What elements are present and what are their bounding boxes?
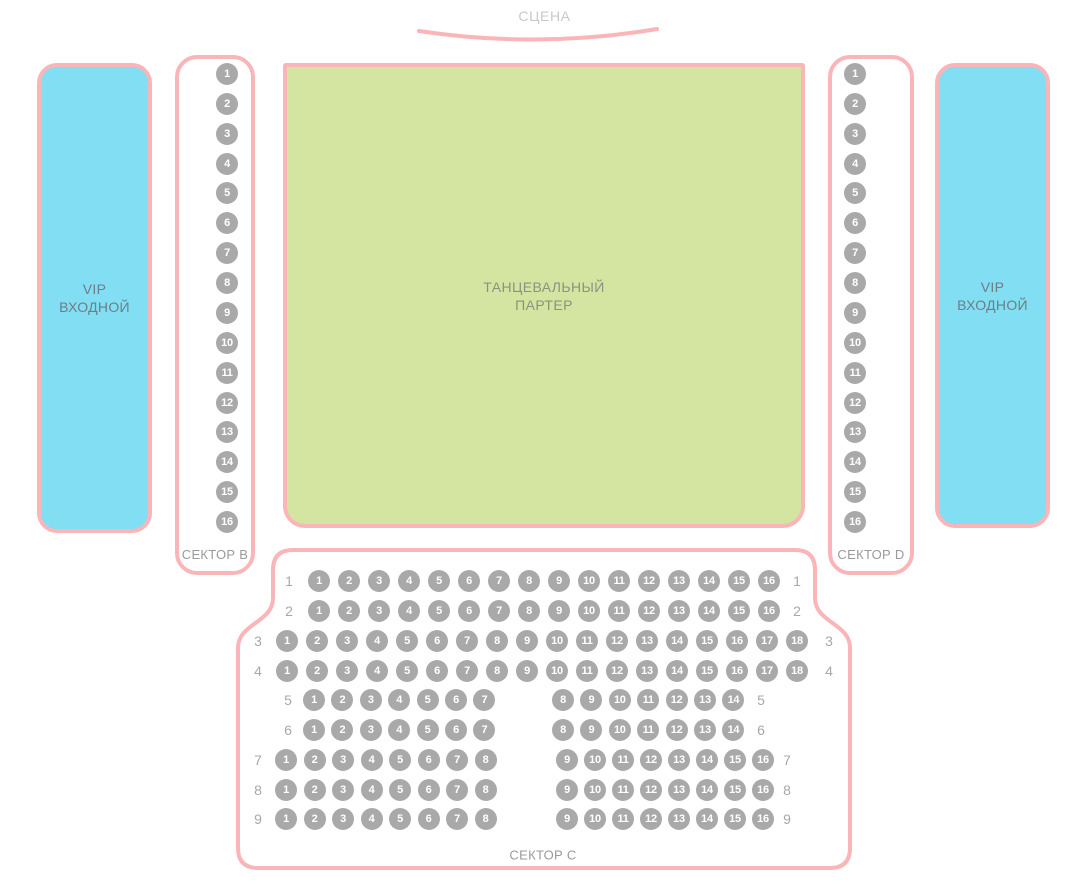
sector-c-seat-r7-3[interactable]: 3 — [332, 749, 354, 771]
sector-c-seat-r2-1[interactable]: 1 — [308, 600, 330, 622]
sector-c-seat-r2-16[interactable]: 16 — [758, 600, 780, 622]
sector-c-seat-r4-3[interactable]: 3 — [336, 660, 358, 682]
sector-c-seat-r4-14[interactable]: 14 — [666, 660, 688, 682]
sector-c-seat-r9-11[interactable]: 11 — [612, 808, 634, 830]
sector-b-seat-7[interactable]: 7 — [216, 242, 238, 264]
sector-c-seat-r2-13[interactable]: 13 — [668, 600, 690, 622]
sector-b-seat-6[interactable]: 6 — [216, 212, 238, 234]
sector-b-seat-5[interactable]: 5 — [216, 182, 238, 204]
sector-c-seat-r4-8[interactable]: 8 — [486, 660, 508, 682]
sector-c-seat-r6-8[interactable]: 8 — [552, 719, 574, 741]
sector-c-seat-r2-8[interactable]: 8 — [518, 600, 540, 622]
sector-c-seat-r8-6[interactable]: 6 — [418, 779, 440, 801]
sector-c-seat-r3-4[interactable]: 4 — [366, 630, 388, 652]
sector-c-row-4-label-right: 4 — [825, 663, 833, 679]
sector-c-seat-r3-11[interactable]: 11 — [576, 630, 598, 652]
sector-c-seat-r2-9[interactable]: 9 — [548, 600, 570, 622]
sector-c-seat-r1-9[interactable]: 9 — [548, 570, 570, 592]
sector-c-seat-r3-3[interactable]: 3 — [336, 630, 358, 652]
sector-b-seat-8[interactable]: 8 — [216, 272, 238, 294]
sector-c-seat-r8-7[interactable]: 7 — [446, 779, 468, 801]
sector-c-seat-r2-5[interactable]: 5 — [428, 600, 450, 622]
sector-d-seat-16[interactable]: 16 — [844, 511, 866, 533]
sector-c-seat-r5-11[interactable]: 11 — [637, 689, 659, 711]
sector-c-seat-r5-10[interactable]: 10 — [609, 689, 631, 711]
sector-c-seat-r2-15[interactable]: 15 — [728, 600, 750, 622]
sector-b-seat-14[interactable]: 14 — [216, 451, 238, 473]
sector-c-seat-r2-11[interactable]: 11 — [608, 600, 630, 622]
sector-c-seat-r4-13[interactable]: 13 — [636, 660, 658, 682]
sector-c-seat-r7-4[interactable]: 4 — [361, 749, 383, 771]
sector-c-row-7-label-right: 7 — [783, 752, 791, 768]
sector-c-seat-r9-6[interactable]: 6 — [418, 808, 440, 830]
sector-c-seat-r7-10[interactable]: 10 — [584, 749, 606, 771]
sector-c-seat-r8-9[interactable]: 9 — [556, 779, 578, 801]
sector-c-seat-r6-12[interactable]: 12 — [666, 719, 688, 741]
sector-b-seat-1[interactable]: 1 — [216, 63, 238, 85]
sector-c-seat-r4-7[interactable]: 7 — [456, 660, 478, 682]
sector-c-seat-r1-1[interactable]: 1 — [308, 570, 330, 592]
sector-c-seat-r9-13[interactable]: 13 — [668, 808, 690, 830]
sector-c-seat-r9-15[interactable]: 15 — [724, 808, 746, 830]
sector-c-seat-r2-7[interactable]: 7 — [488, 600, 510, 622]
sector-d-seat-4[interactable]: 4 — [844, 153, 866, 175]
sector-c-seat-r6-6[interactable]: 6 — [445, 719, 467, 741]
sector-c-seat-r3-17[interactable]: 17 — [756, 630, 778, 652]
sector-c-seat-r8-1[interactable]: 1 — [275, 779, 297, 801]
sector-c-seat-r7-5[interactable]: 5 — [389, 749, 411, 771]
sector-c-seat-r4-12[interactable]: 12 — [606, 660, 628, 682]
sector-c-seat-r4-15[interactable]: 15 — [696, 660, 718, 682]
sector-c-seat-r9-14[interactable]: 14 — [696, 808, 718, 830]
sector-c-seat-r3-9[interactable]: 9 — [516, 630, 538, 652]
sector-c-seat-r4-9[interactable]: 9 — [516, 660, 538, 682]
sector-c-row-2-label-right: 2 — [793, 603, 801, 619]
sector-c-seat-r5-13[interactable]: 13 — [694, 689, 716, 711]
sector-c-seat-r7-11[interactable]: 11 — [612, 749, 634, 771]
sector-c-row-1-label-left: 1 — [285, 573, 293, 589]
sector-c-seat-r1-7[interactable]: 7 — [488, 570, 510, 592]
sector-c-seat-r5-9[interactable]: 9 — [580, 689, 602, 711]
sector-c-seat-r7-13[interactable]: 13 — [668, 749, 690, 771]
sector-c-seat-r9-5[interactable]: 5 — [389, 808, 411, 830]
sector-d-seat-14[interactable]: 14 — [844, 451, 866, 473]
sector-b-seat-13[interactable]: 13 — [216, 421, 238, 443]
sector-c-seat-r7-9[interactable]: 9 — [556, 749, 578, 771]
sector-c-seat-r8-11[interactable]: 11 — [612, 779, 634, 801]
sector-c-seat-r6-5[interactable]: 5 — [417, 719, 439, 741]
sector-d-seat-6[interactable]: 6 — [844, 212, 866, 234]
sector-c-seat-r4-5[interactable]: 5 — [396, 660, 418, 682]
sector-c-seat-r1-11[interactable]: 11 — [608, 570, 630, 592]
sector-c-seat-r5-1[interactable]: 1 — [303, 689, 325, 711]
sector-c-seat-r7-12[interactable]: 12 — [640, 749, 662, 771]
sector-c-seat-r1-12[interactable]: 12 — [638, 570, 660, 592]
sector-c-row-5-label-left: 5 — [284, 692, 292, 708]
sector-c-seat-r6-13[interactable]: 13 — [694, 719, 716, 741]
sector-b-seat-10[interactable]: 10 — [216, 332, 238, 354]
sector-b-seat-11[interactable]: 11 — [216, 362, 238, 384]
sector-c-seat-r1-16[interactable]: 16 — [758, 570, 780, 592]
sector-c-seat-r9-16[interactable]: 16 — [752, 808, 774, 830]
seats-layer: 1234567891011121314151612345678910111213… — [0, 0, 1089, 885]
sector-c-seat-r2-14[interactable]: 14 — [698, 600, 720, 622]
sector-c-seat-r3-2[interactable]: 2 — [306, 630, 328, 652]
sector-c-seat-r6-11[interactable]: 11 — [637, 719, 659, 741]
sector-c-seat-r3-7[interactable]: 7 — [456, 630, 478, 652]
sector-c-seat-r2-3[interactable]: 3 — [368, 600, 390, 622]
sector-c-row-4-label-left: 4 — [254, 663, 262, 679]
sector-c-seat-r5-12[interactable]: 12 — [666, 689, 688, 711]
sector-d-seat-7[interactable]: 7 — [844, 242, 866, 264]
sector-c-seat-r8-5[interactable]: 5 — [389, 779, 411, 801]
sector-b-seat-4[interactable]: 4 — [216, 153, 238, 175]
sector-d-seat-3[interactable]: 3 — [844, 123, 866, 145]
sector-c-seat-r8-2[interactable]: 2 — [304, 779, 326, 801]
sector-c-seat-r9-8[interactable]: 8 — [475, 808, 497, 830]
sector-c-seat-r4-11[interactable]: 11 — [576, 660, 598, 682]
sector-d-seat-1[interactable]: 1 — [844, 63, 866, 85]
sector-c-row-5-label-right: 5 — [757, 692, 765, 708]
sector-c-seat-r4-18[interactable]: 18 — [786, 660, 808, 682]
sector-c-row-3-label-left: 3 — [254, 633, 262, 649]
sector-c-seat-r1-10[interactable]: 10 — [578, 570, 600, 592]
sector-c-row-3-label-right: 3 — [825, 633, 833, 649]
sector-d-seat-8[interactable]: 8 — [844, 272, 866, 294]
sector-c-row-9-label-left: 9 — [254, 811, 262, 827]
sector-d-seat-5[interactable]: 5 — [844, 182, 866, 204]
sector-c-seat-r3-16[interactable]: 16 — [726, 630, 748, 652]
sector-c-seat-r4-17[interactable]: 17 — [756, 660, 778, 682]
sector-c-seat-r5-7[interactable]: 7 — [473, 689, 495, 711]
sector-c-seat-r4-6[interactable]: 6 — [426, 660, 448, 682]
sector-c-row-8-label-left: 8 — [254, 782, 262, 798]
sector-c-seat-r3-1[interactable]: 1 — [276, 630, 298, 652]
sector-c-seat-r8-16[interactable]: 16 — [752, 779, 774, 801]
sector-c-seat-r9-10[interactable]: 10 — [584, 808, 606, 830]
sector-c-seat-r7-14[interactable]: 14 — [696, 749, 718, 771]
sector-d-seat-13[interactable]: 13 — [844, 421, 866, 443]
sector-d-seat-2[interactable]: 2 — [844, 93, 866, 115]
sector-c-seat-r3-14[interactable]: 14 — [666, 630, 688, 652]
sector-d-seat-9[interactable]: 9 — [844, 302, 866, 324]
sector-d-seat-12[interactable]: 12 — [844, 392, 866, 414]
sector-c-seat-r3-8[interactable]: 8 — [486, 630, 508, 652]
sector-c-seat-r1-6[interactable]: 6 — [458, 570, 480, 592]
sector-c-seat-r8-8[interactable]: 8 — [475, 779, 497, 801]
sector-c-seat-r2-12[interactable]: 12 — [638, 600, 660, 622]
sector-c-seat-r6-3[interactable]: 3 — [360, 719, 382, 741]
sector-c-seat-r8-10[interactable]: 10 — [584, 779, 606, 801]
sector-c-seat-r4-10[interactable]: 10 — [546, 660, 568, 682]
sector-c-row-1-label-right: 1 — [793, 573, 801, 589]
sector-c-seat-r8-14[interactable]: 14 — [696, 779, 718, 801]
sector-b-seat-3[interactable]: 3 — [216, 123, 238, 145]
sector-c-seat-r1-2[interactable]: 2 — [338, 570, 360, 592]
sector-c-seat-r5-8[interactable]: 8 — [552, 689, 574, 711]
sector-b-seat-12[interactable]: 12 — [216, 392, 238, 414]
sector-c-seat-r7-8[interactable]: 8 — [475, 749, 497, 771]
sector-c-seat-r1-4[interactable]: 4 — [398, 570, 420, 592]
sector-c-seat-r6-4[interactable]: 4 — [388, 719, 410, 741]
sector-c-seat-r9-7[interactable]: 7 — [446, 808, 468, 830]
sector-c-seat-r6-9[interactable]: 9 — [580, 719, 602, 741]
sector-c-row-6-label-right: 6 — [757, 722, 765, 738]
sector-c-seat-r4-2[interactable]: 2 — [306, 660, 328, 682]
sector-c-seat-r7-7[interactable]: 7 — [446, 749, 468, 771]
sector-c-seat-r3-5[interactable]: 5 — [396, 630, 418, 652]
sector-c-seat-r5-4[interactable]: 4 — [388, 689, 410, 711]
sector-d-seat-10[interactable]: 10 — [844, 332, 866, 354]
sector-c-seat-r3-13[interactable]: 13 — [636, 630, 658, 652]
sector-c-seat-r1-8[interactable]: 8 — [518, 570, 540, 592]
sector-c-seat-r9-4[interactable]: 4 — [361, 808, 383, 830]
sector-c-seat-r8-13[interactable]: 13 — [668, 779, 690, 801]
sector-c-seat-r3-6[interactable]: 6 — [426, 630, 448, 652]
sector-c-seat-r6-14[interactable]: 14 — [722, 719, 744, 741]
sector-c-seat-r3-10[interactable]: 10 — [546, 630, 568, 652]
sector-c-row-7-label-left: 7 — [254, 752, 262, 768]
sector-d-seat-15[interactable]: 15 — [844, 481, 866, 503]
sector-c-seat-r2-6[interactable]: 6 — [458, 600, 480, 622]
sector-c-row-9-label-right: 9 — [783, 811, 791, 827]
sector-b-seat-2[interactable]: 2 — [216, 93, 238, 115]
sector-c-seat-r7-2[interactable]: 2 — [304, 749, 326, 771]
sector-c-row-6-label-left: 6 — [284, 722, 292, 738]
sector-c-row-2-label-left: 2 — [285, 603, 293, 619]
sector-c-seat-r8-3[interactable]: 3 — [332, 779, 354, 801]
sector-b-seat-15[interactable]: 15 — [216, 481, 238, 503]
sector-c-seat-r4-16[interactable]: 16 — [726, 660, 748, 682]
sector-c-seat-r1-15[interactable]: 15 — [728, 570, 750, 592]
sector-c-seat-r1-3[interactable]: 3 — [368, 570, 390, 592]
sector-c-seat-r1-13[interactable]: 13 — [668, 570, 690, 592]
sector-c-seat-r7-15[interactable]: 15 — [724, 749, 746, 771]
sector-c-seat-r3-12[interactable]: 12 — [606, 630, 628, 652]
sector-c-seat-r8-4[interactable]: 4 — [361, 779, 383, 801]
sector-b-seat-9[interactable]: 9 — [216, 302, 238, 324]
sector-c-seat-r7-6[interactable]: 6 — [418, 749, 440, 771]
sector-c-seat-r1-5[interactable]: 5 — [428, 570, 450, 592]
sector-c-seat-r8-12[interactable]: 12 — [640, 779, 662, 801]
sector-c-seat-r9-3[interactable]: 3 — [332, 808, 354, 830]
sector-c-seat-r6-10[interactable]: 10 — [609, 719, 631, 741]
sector-c-seat-r4-1[interactable]: 1 — [276, 660, 298, 682]
sector-b-seat-16[interactable]: 16 — [216, 511, 238, 533]
sector-c-seat-r5-3[interactable]: 3 — [360, 689, 382, 711]
sector-c-seat-r5-6[interactable]: 6 — [445, 689, 467, 711]
sector-c-seat-r3-15[interactable]: 15 — [696, 630, 718, 652]
sector-c-seat-r7-16[interactable]: 16 — [752, 749, 774, 771]
sector-c-seat-r6-2[interactable]: 2 — [331, 719, 353, 741]
sector-c-seat-r9-2[interactable]: 2 — [304, 808, 326, 830]
sector-c-seat-r9-9[interactable]: 9 — [556, 808, 578, 830]
sector-c-row-8-label-right: 8 — [783, 782, 791, 798]
sector-c-seat-r9-1[interactable]: 1 — [275, 808, 297, 830]
sector-c-seat-r2-10[interactable]: 10 — [578, 600, 600, 622]
sector-c-seat-r5-14[interactable]: 14 — [722, 689, 744, 711]
sector-c-seat-r8-15[interactable]: 15 — [724, 779, 746, 801]
sector-c-seat-r5-2[interactable]: 2 — [331, 689, 353, 711]
sector-c-seat-r2-2[interactable]: 2 — [338, 600, 360, 622]
sector-c-seat-r7-1[interactable]: 1 — [275, 749, 297, 771]
sector-c-seat-r6-1[interactable]: 1 — [303, 719, 325, 741]
sector-c-seat-r3-18[interactable]: 18 — [786, 630, 808, 652]
sector-c-seat-r9-12[interactable]: 12 — [640, 808, 662, 830]
sector-d-seat-11[interactable]: 11 — [844, 362, 866, 384]
sector-c-seat-r1-14[interactable]: 14 — [698, 570, 720, 592]
seating-map: СЦЕНА VIP ВХОДНОЙ СЕКТОР B ТАНЦЕВАЛЬНЫЙ … — [0, 0, 1089, 885]
sector-c-seat-r4-4[interactable]: 4 — [366, 660, 388, 682]
sector-c-seat-r6-7[interactable]: 7 — [473, 719, 495, 741]
sector-c-seat-r2-4[interactable]: 4 — [398, 600, 420, 622]
sector-c-seat-r5-5[interactable]: 5 — [417, 689, 439, 711]
